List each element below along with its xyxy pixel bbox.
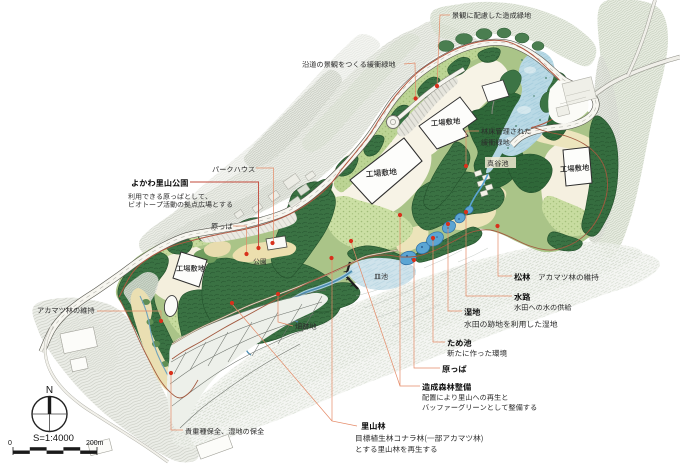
svg-text:N: N — [46, 385, 53, 396]
svg-text:200m: 200m — [86, 440, 104, 447]
svg-text:0: 0 — [8, 440, 12, 447]
svg-text:S=1:4000: S=1:4000 — [33, 433, 74, 444]
